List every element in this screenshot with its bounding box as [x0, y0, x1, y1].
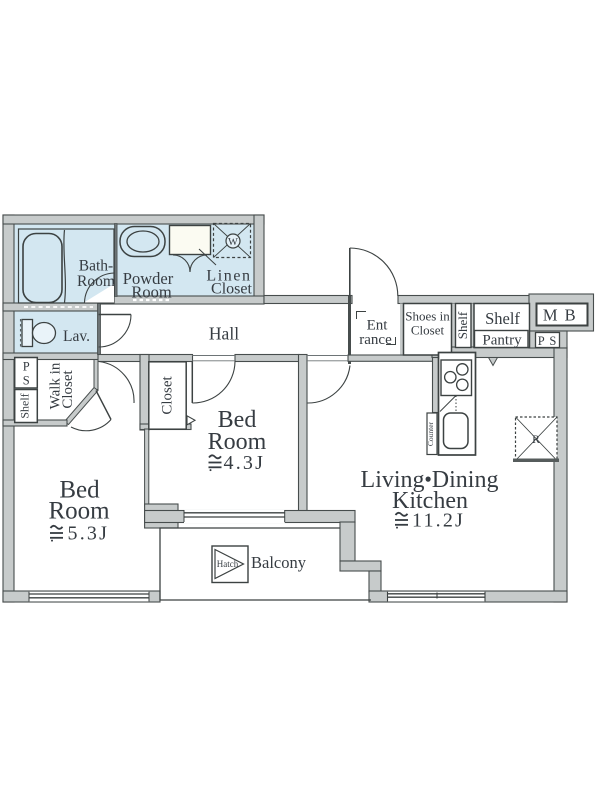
svg-text:Pantry: Pantry [482, 333, 522, 349]
svg-text:11.2J: 11.2J [412, 510, 465, 532]
svg-text:Hatch: Hatch [217, 559, 239, 569]
svg-text:Shoes in: Shoes in [405, 309, 450, 324]
svg-text:Closet: Closet [160, 376, 176, 415]
svg-text:P S: P S [538, 334, 558, 348]
svg-text:Room: Room [77, 273, 115, 290]
svg-text:W: W [228, 237, 238, 248]
svg-text:Bath-: Bath- [79, 258, 113, 275]
svg-text:Counter: Counter [426, 421, 435, 446]
svg-text:Shelf: Shelf [485, 309, 520, 328]
svg-text:R: R [532, 434, 540, 446]
svg-text:Shelf: Shelf [455, 311, 470, 339]
svg-text:Room: Room [48, 498, 110, 525]
svg-text:P: P [23, 360, 30, 374]
svg-text:Shelf: Shelf [18, 393, 32, 418]
svg-text:5.3J: 5.3J [68, 523, 110, 545]
svg-text:Closet: Closet [60, 370, 76, 409]
svg-text:Balcony: Balcony [251, 553, 307, 572]
svg-text:Hall: Hall [209, 324, 239, 344]
svg-text:M B: M B [543, 306, 577, 325]
svg-text:Closet: Closet [411, 323, 445, 338]
svg-text:S: S [23, 374, 30, 388]
svg-text:Room: Room [131, 283, 172, 302]
svg-text:4.3J: 4.3J [224, 452, 266, 474]
svg-text:Closet: Closet [211, 281, 252, 298]
svg-text:rance: rance [359, 332, 392, 348]
svg-text:Lav.: Lav. [63, 328, 90, 345]
